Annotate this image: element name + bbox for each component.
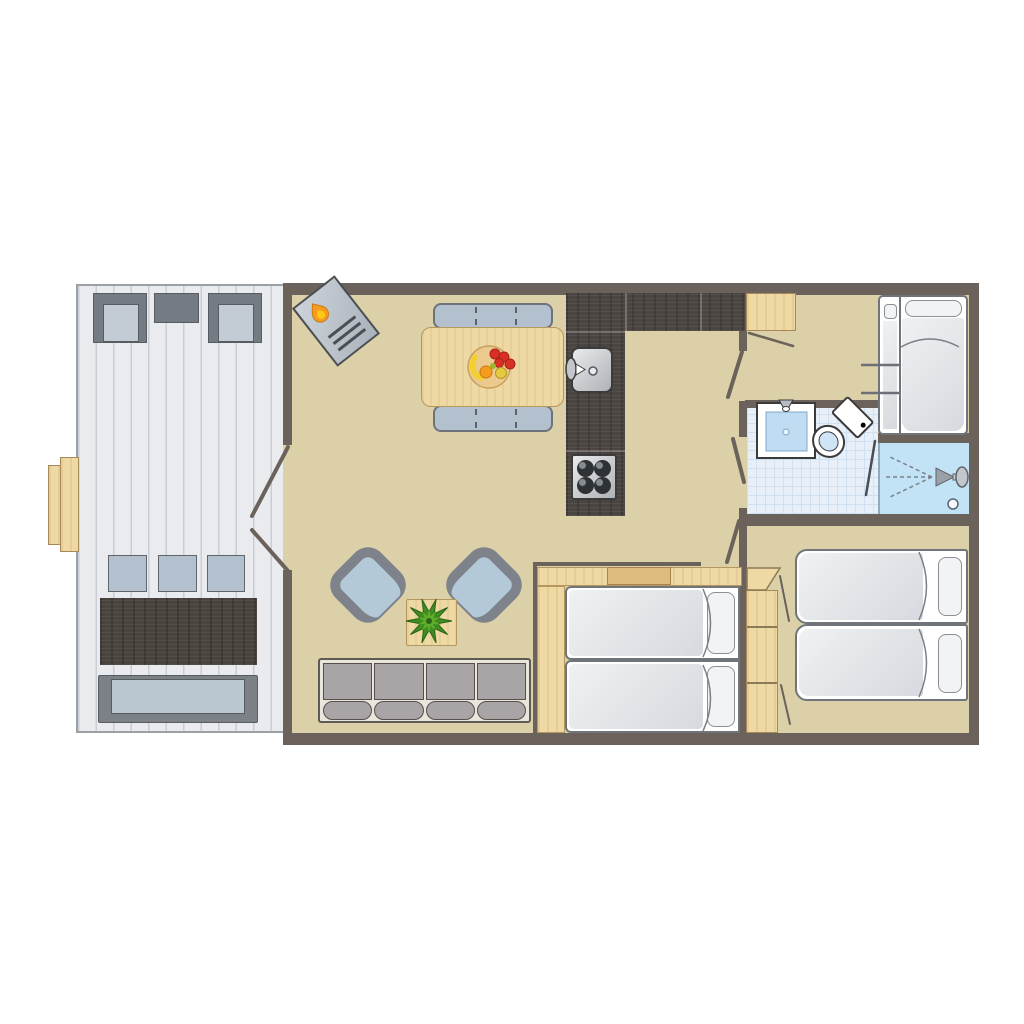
counter-seam	[625, 293, 627, 331]
dining-table	[421, 327, 564, 407]
pillow	[905, 300, 962, 317]
bench-divider	[515, 307, 517, 325]
wall-middle-bedroom-top	[533, 562, 701, 566]
pillow	[707, 592, 735, 654]
stove-vent-line	[338, 328, 366, 351]
sofa-back-cushions	[323, 663, 526, 700]
bench-divider	[515, 409, 517, 428]
bed	[795, 549, 968, 624]
counter-seam	[566, 331, 625, 333]
side-table	[154, 293, 199, 323]
terrace-table	[100, 598, 257, 665]
terrace-deck	[76, 284, 283, 733]
bed	[565, 660, 740, 733]
kitchen-sink	[571, 347, 613, 393]
garden-chair	[207, 555, 245, 592]
shower-tray	[878, 443, 969, 514]
kitchen-stove	[571, 454, 617, 500]
sofa-seat-cushion	[426, 701, 475, 720]
sofa	[318, 658, 531, 723]
flame-icon	[302, 295, 336, 329]
mattress	[799, 629, 923, 696]
deck-chair-seat	[103, 304, 139, 342]
bunk-divider	[899, 297, 901, 433]
shelf-box	[607, 567, 671, 585]
bench-divider	[475, 307, 477, 325]
garden-chair	[108, 555, 147, 592]
entry-step	[60, 457, 79, 552]
bed	[565, 586, 740, 660]
garden-bench-seat	[111, 679, 245, 714]
mattress	[569, 664, 703, 729]
pillow	[707, 666, 735, 727]
sofa-seat-cushion	[477, 701, 526, 720]
sofa-seat-cushions	[323, 701, 526, 720]
bunk-bed	[878, 295, 968, 435]
plant-table	[406, 599, 457, 646]
mattress	[569, 590, 703, 656]
counter-seam	[700, 293, 702, 331]
headboard-shelf-left	[537, 586, 565, 733]
sofa-cushion	[323, 663, 372, 700]
stove-burner	[594, 477, 611, 494]
terrace-doorway-floor	[283, 445, 292, 570]
dining-bench	[433, 303, 553, 329]
garden-chair	[158, 555, 197, 592]
sofa-cushion	[374, 663, 423, 700]
wall-right	[969, 283, 979, 745]
mattress	[902, 318, 964, 431]
pillow	[884, 304, 897, 319]
wall-left-lower	[283, 570, 292, 740]
bench-divider	[475, 409, 477, 428]
stove-burner	[577, 460, 594, 477]
deck-chair-seat	[218, 304, 254, 342]
sofa-cushion	[477, 663, 526, 700]
bathroom-floor	[747, 402, 878, 514]
wardrobe-divider	[747, 682, 777, 684]
dining-bench	[433, 405, 553, 432]
pillow	[938, 634, 962, 693]
hall-wardrobe	[746, 293, 796, 331]
wall-bottom	[283, 733, 979, 745]
wall-bathroom-top	[745, 400, 878, 408]
wall-bathroom-bottom	[745, 514, 969, 526]
deck-chair	[208, 293, 262, 343]
bed	[795, 624, 968, 701]
floor-plan-canvas	[0, 0, 1024, 1024]
stove-burner	[577, 477, 594, 494]
wall-left-upper	[283, 283, 292, 445]
bunk-side-mattress	[883, 321, 897, 429]
mattress	[799, 553, 923, 620]
sofa-seat-cushion	[374, 701, 423, 720]
wardrobe-divider	[747, 626, 777, 628]
sofa-seat-cushion	[323, 701, 372, 720]
pillow	[938, 557, 962, 616]
deck-chair	[93, 293, 147, 343]
wardrobe	[746, 590, 778, 733]
sofa-cushion	[426, 663, 475, 700]
counter-seam	[566, 450, 625, 452]
stove-burner	[594, 460, 611, 477]
garden-bench	[98, 675, 258, 723]
